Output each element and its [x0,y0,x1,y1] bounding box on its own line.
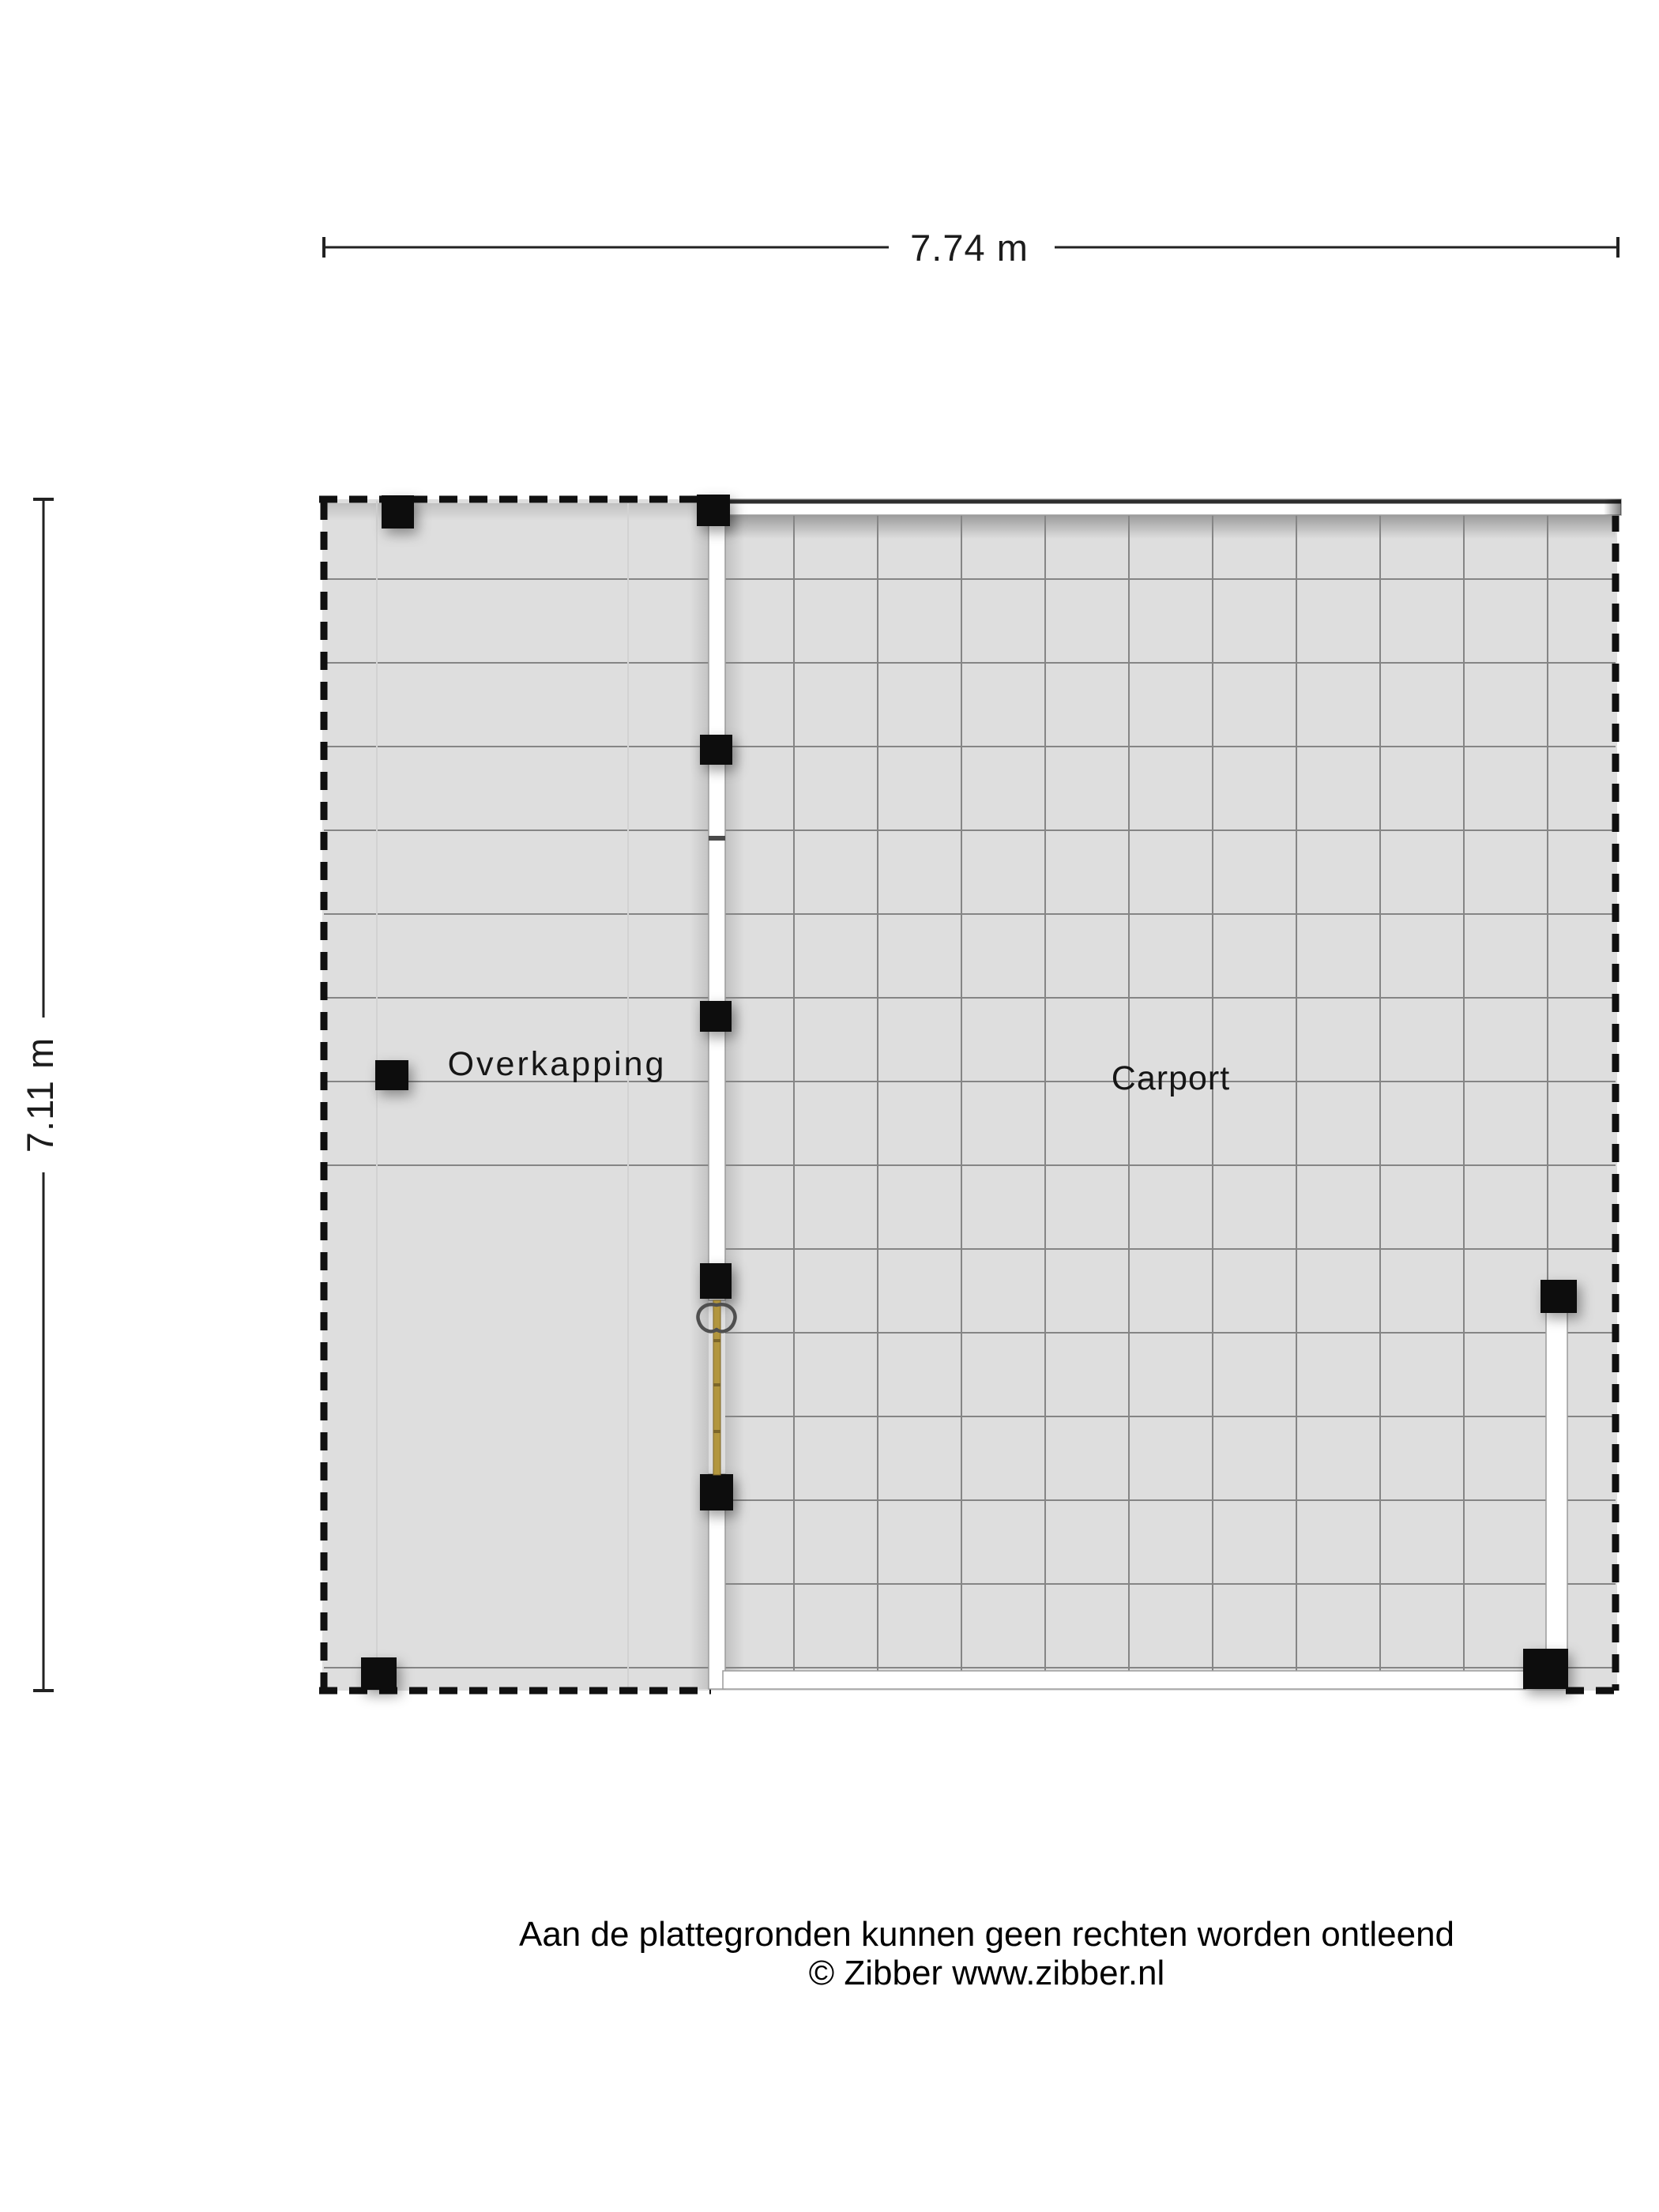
wall-shadow [324,503,700,521]
wall-shadow [725,515,1616,539]
width-dimension-label: 7.74 m [910,227,1029,269]
door-leaf [713,1300,720,1475]
plan-geometry [33,237,1621,1691]
post [700,1001,732,1032]
post [1523,1649,1568,1689]
footer-copyright: © Zibber www.zibber.nl [809,1954,1165,1992]
room-label-carport: Carport [1112,1059,1230,1097]
floorplan-svg: 7.74 m 7.11 m Overkapping Carport Aan de… [0,0,1659,2212]
floor-area [322,499,1617,1691]
wall-bottom [723,1671,1525,1689]
post [700,735,732,765]
post [700,1474,733,1510]
post [700,1263,732,1299]
room-label-overkapping: Overkapping [448,1045,667,1083]
wall-center [709,506,725,1300]
post [361,1657,397,1690]
height-dimension-label: 7.11 m [19,1037,61,1153]
post [697,495,730,526]
post [382,495,414,529]
floorplan-page: 7.74 m 7.11 m Overkapping Carport Aan de… [0,0,1659,2212]
post [1540,1280,1577,1313]
wall-shadow [690,499,709,1689]
wall-right [1546,1311,1567,1650]
footer-disclaimer: Aan de plattegronden kunnen geen rechten… [519,1915,1454,1954]
wall-end-cap [1604,499,1621,515]
post [375,1060,408,1090]
